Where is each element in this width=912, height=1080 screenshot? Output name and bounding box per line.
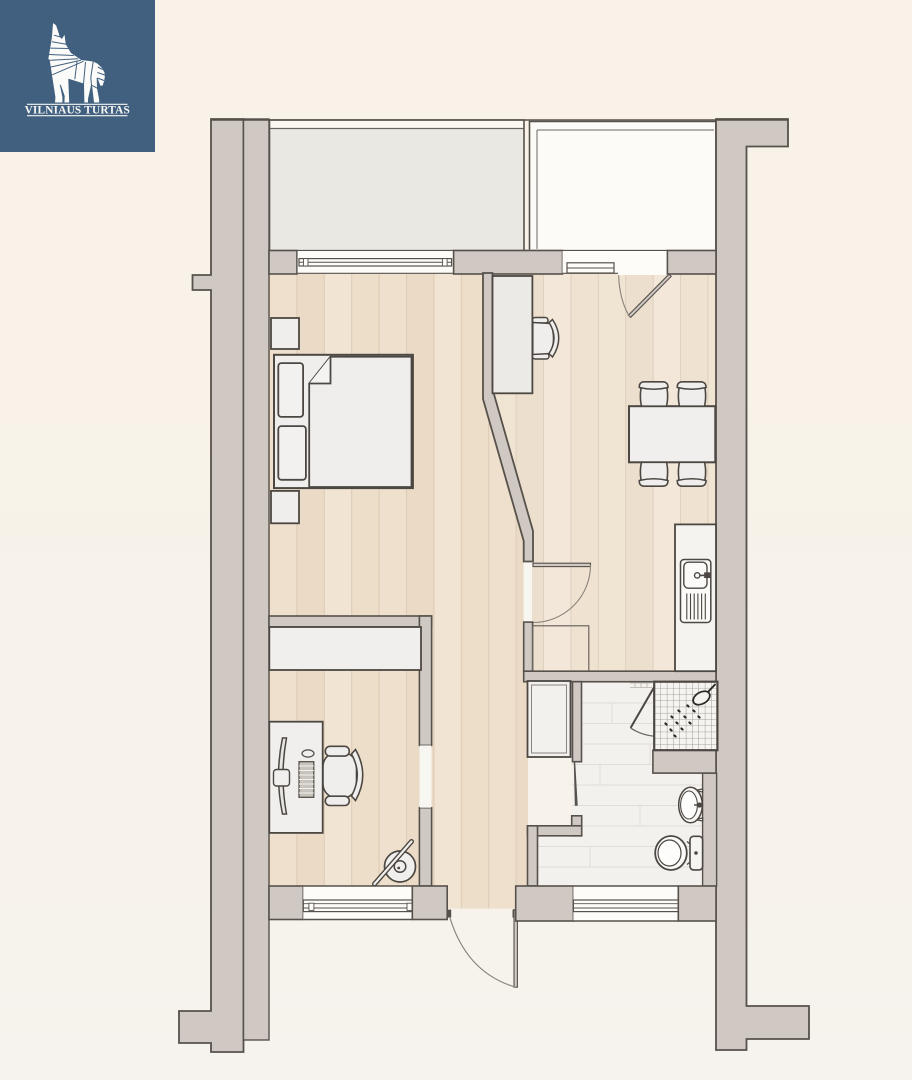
svg-text:VILNIAUS TURTAS: VILNIAUS TURTAS: [25, 104, 130, 116]
